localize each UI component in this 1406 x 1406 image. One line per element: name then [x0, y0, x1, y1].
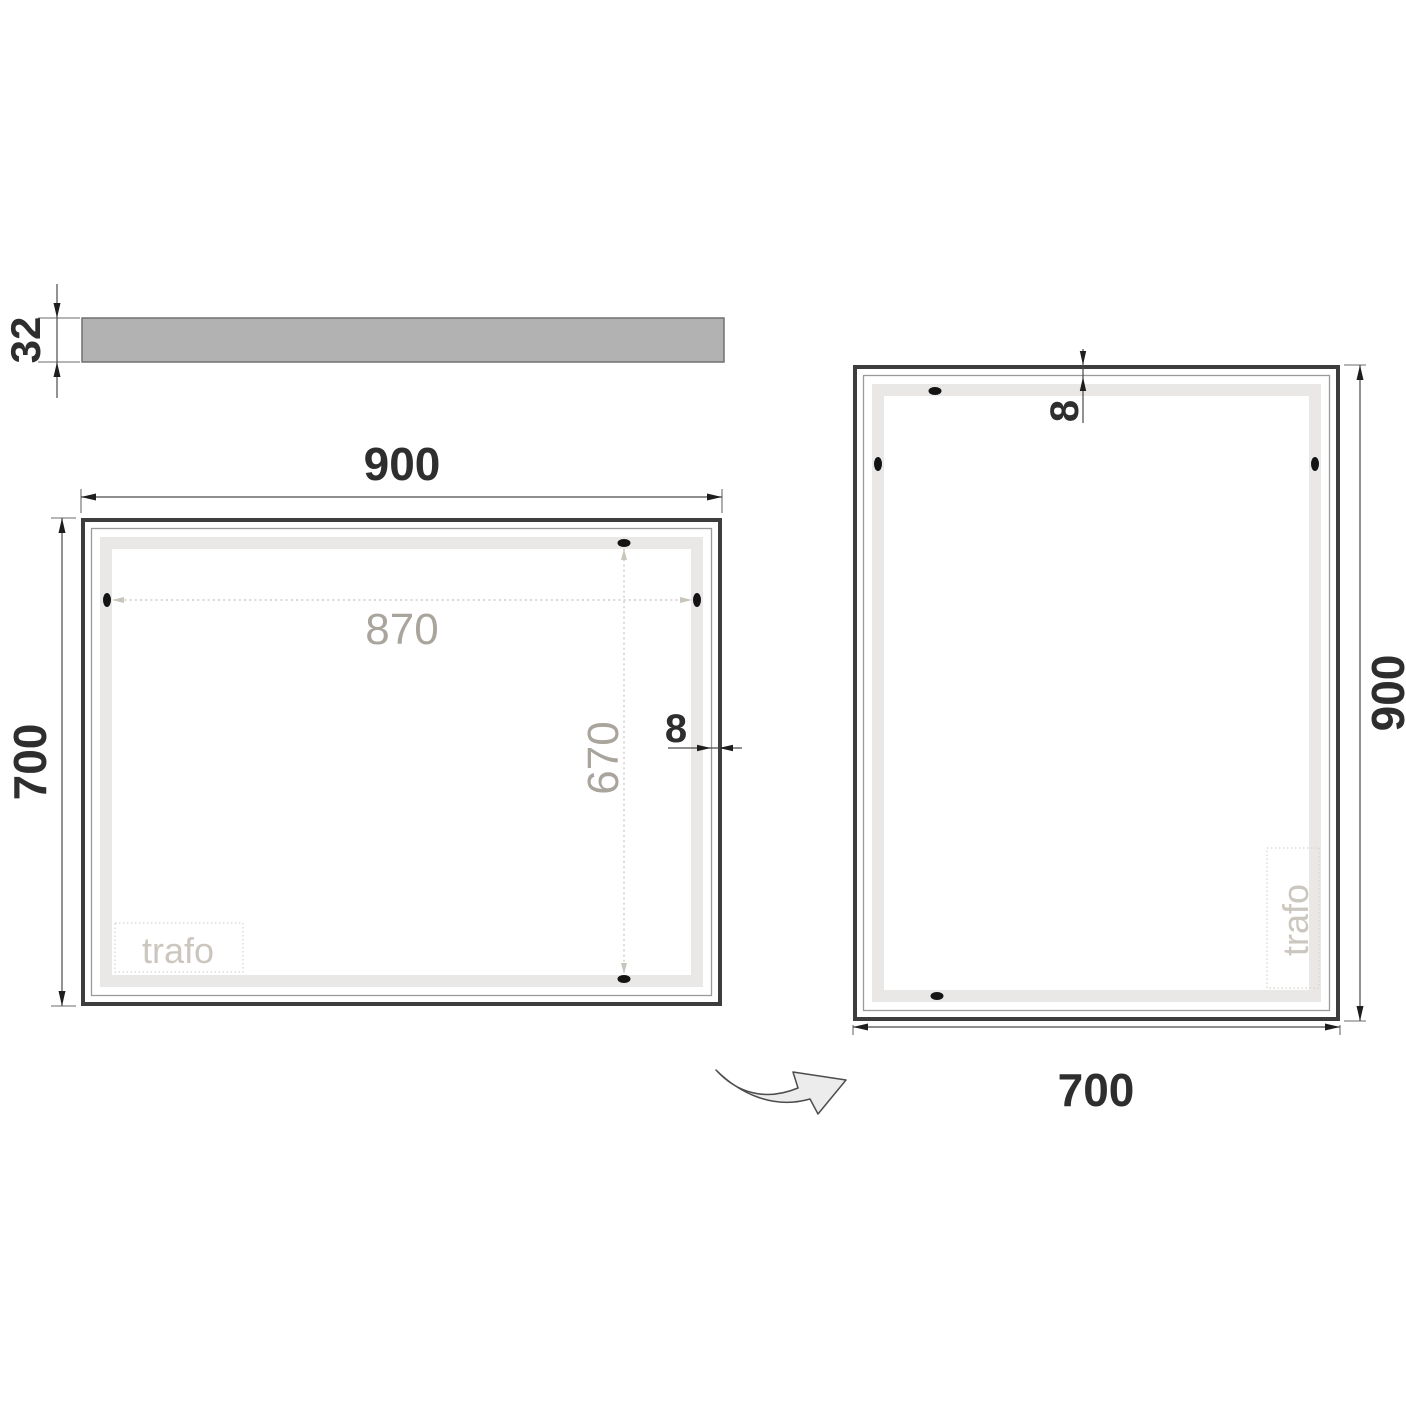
illuminated-width-arrow-left-icon	[112, 597, 124, 603]
led-offset-arrow-right-icon	[697, 745, 711, 751]
illuminated-width-label: 870	[365, 605, 438, 654]
portrait-mirror-inner-line	[864, 376, 1330, 1011]
portrait-height-label: 900	[1362, 655, 1406, 732]
height-arrow-top-icon	[59, 518, 66, 533]
thickness-label: 32	[2, 317, 49, 364]
fixing-dot-bottom	[618, 975, 631, 983]
led-offset-label: 8	[665, 707, 687, 751]
portrait-mirror-outer-frame	[855, 367, 1338, 1019]
fixing-dot-right	[693, 593, 701, 607]
thickness-arrow-up-icon	[54, 362, 61, 377]
portrait-fixing-dot-right	[1311, 457, 1319, 471]
portrait-fixing-dot-bottom	[931, 992, 944, 1000]
portrait-led-offset-label: 8	[1043, 400, 1087, 422]
transformer-label: trafo	[142, 930, 214, 971]
width-label: 900	[364, 438, 441, 490]
rotation-arrow-icon	[716, 1070, 846, 1114]
portrait-height-arrow-top-icon	[1357, 365, 1364, 380]
thickness-arrow-down-icon	[54, 303, 61, 318]
side-view-profile-bar	[82, 318, 724, 362]
portrait-transformer-label: trafo	[1275, 884, 1316, 956]
illuminated-height-arrow-top-icon	[621, 549, 627, 560]
mirror-technical-drawing: 32 870 670 900 700	[0, 0, 1406, 1406]
portrait-width-arrow-left-icon	[853, 1024, 868, 1031]
portrait-width-arrow-right-icon	[1325, 1024, 1340, 1031]
portrait-height-arrow-bottom-icon	[1357, 1006, 1364, 1021]
illuminated-height-arrow-bottom-icon	[621, 963, 627, 974]
portrait-front-view: 8 900 700 trafo	[853, 349, 1406, 1116]
side-profile-view: 32	[2, 284, 724, 398]
fixing-dot-left	[103, 593, 111, 607]
width-arrow-right-icon	[707, 494, 722, 501]
portrait-width-label: 700	[1058, 1064, 1135, 1116]
height-arrow-bottom-icon	[59, 991, 66, 1006]
fixing-dot-top	[618, 539, 631, 547]
portrait-led-band	[878, 390, 1315, 996]
height-label: 700	[4, 724, 56, 801]
illuminated-width-arrow-right-icon	[680, 597, 692, 603]
width-arrow-left-icon	[81, 494, 96, 501]
landscape-front-view: 870 670 900 700 8 trafo	[4, 438, 742, 1006]
portrait-fixing-dot-left	[874, 457, 882, 471]
portrait-led-offset-arrow-down-icon	[1080, 351, 1086, 365]
rotation-arrow	[716, 1070, 846, 1114]
illuminated-height-label: 670	[579, 721, 628, 794]
portrait-fixing-dot-top	[929, 387, 942, 395]
